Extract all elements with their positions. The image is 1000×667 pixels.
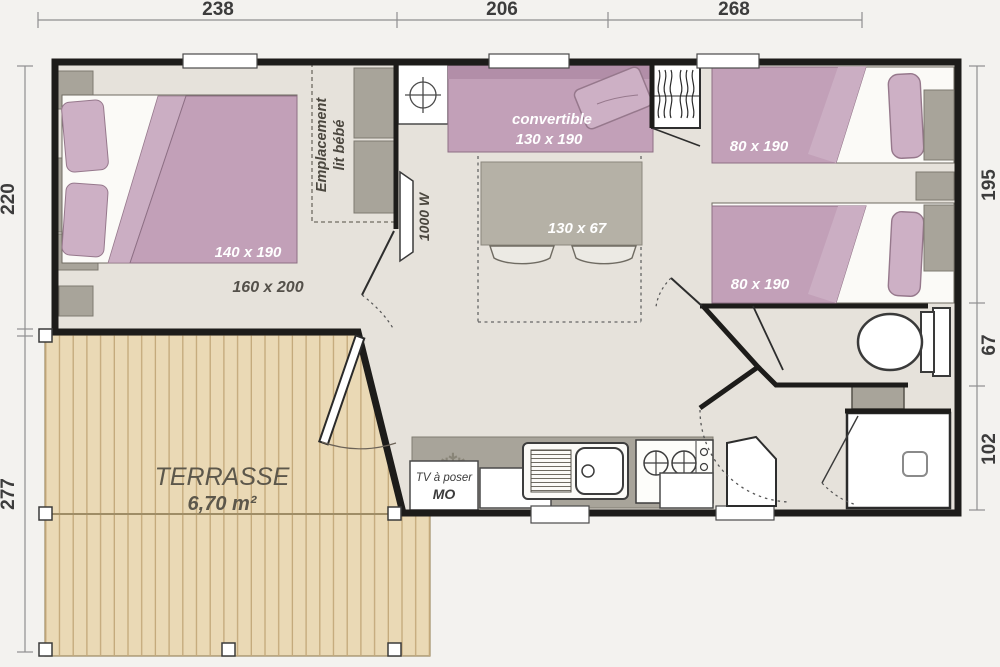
- dimension-label-top-1: 238: [202, 0, 234, 20]
- convertible-label-line2: 130 x 190: [516, 131, 583, 148]
- sink-drainboard: [531, 450, 571, 492]
- sink-basin: [576, 448, 623, 494]
- window: [531, 506, 589, 523]
- dimension-label-left-2: 277: [0, 478, 19, 510]
- dimension-label-right-2: 67: [979, 334, 1000, 355]
- twin-bed-1-pillow: [888, 73, 924, 159]
- terrace-post: [388, 643, 401, 656]
- floor-plan-page: 238 206 268 220 277 195 67 102: [0, 0, 1000, 667]
- convertible-label-line1: convertible: [512, 111, 592, 128]
- terrace-area-label: 6,70 m²: [188, 493, 258, 515]
- window: [697, 54, 759, 68]
- terrace-post: [39, 643, 52, 656]
- cabinet-front: [660, 473, 713, 508]
- terrace-post: [388, 507, 401, 520]
- baby-area-wardrobe: [354, 68, 397, 138]
- dimension-label-top-2: 206: [486, 0, 518, 20]
- dimension-label-right-3: 102: [979, 433, 1000, 465]
- window: [489, 54, 569, 68]
- master-bed-pillow: [61, 99, 109, 172]
- shower-tray: [847, 413, 950, 508]
- master-room-label: 160 x 200: [232, 279, 303, 296]
- chair: [572, 246, 636, 264]
- master-bed-pillow: [62, 183, 109, 258]
- dimension-label-right-1: 195: [979, 169, 1000, 201]
- toilet-icon: [858, 308, 950, 376]
- baby-area-wardrobe: [354, 141, 397, 213]
- twin-bed-1-label: 80 x 190: [730, 138, 789, 155]
- nightstand: [924, 90, 954, 160]
- washbasin: [852, 386, 904, 409]
- window: [716, 506, 774, 520]
- radiator-label: 1000 W: [416, 191, 432, 241]
- terrace-post: [39, 507, 52, 520]
- twin-bed-2-label: 80 x 190: [731, 276, 790, 293]
- master-bed-label: 140 x 190: [215, 244, 282, 261]
- chair: [490, 246, 554, 264]
- radiator-icon: [400, 172, 413, 261]
- tv-label-line1: TV à poser: [416, 472, 473, 484]
- wardrobe-block: [59, 286, 93, 316]
- floor-plan-svg: 238 206 268 220 277 195 67 102: [0, 0, 1000, 667]
- terrace-post: [222, 643, 235, 656]
- twin-bed-2-pillow: [888, 211, 924, 297]
- baby-bed-label-line2: lit bébé: [332, 120, 348, 171]
- dimension-label-left-1: 220: [0, 183, 19, 215]
- nightstand: [924, 205, 954, 271]
- baby-bed-label-line1: Emplacement: [314, 97, 330, 192]
- terrace-post: [39, 329, 52, 342]
- dimension-label-top-3: 268: [718, 0, 750, 20]
- between-beds-shelf: [916, 172, 954, 200]
- window: [183, 54, 257, 68]
- shower-drain: [903, 452, 927, 476]
- tv-label-line2: MO: [433, 486, 456, 502]
- terrace-label: TERRASSE: [155, 463, 290, 491]
- table-label: 130 x 67: [548, 220, 607, 237]
